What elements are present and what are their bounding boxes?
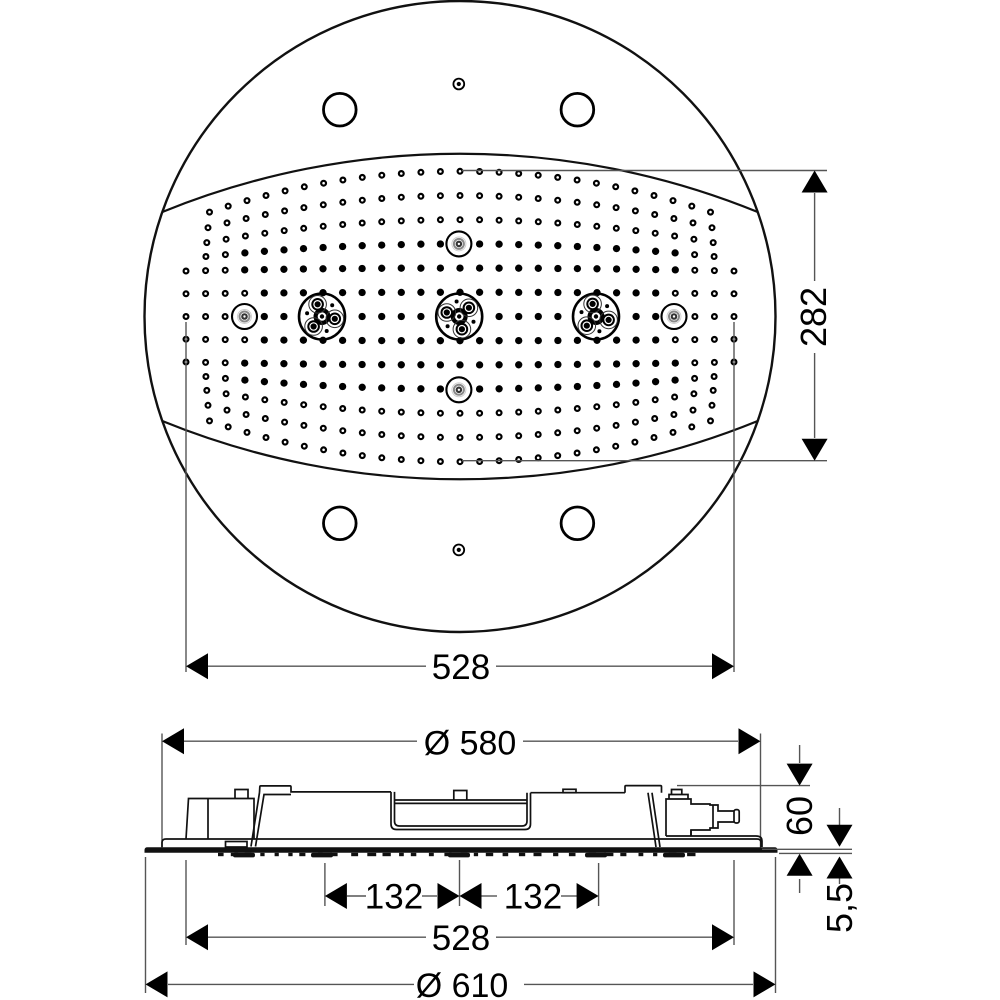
svg-text:60: 60 [779, 796, 820, 836]
svg-text:5,5: 5,5 [819, 883, 860, 933]
svg-text:Ø 580: Ø 580 [424, 725, 517, 763]
svg-text:528: 528 [432, 648, 490, 687]
svg-text:282: 282 [793, 287, 834, 347]
svg-text:132: 132 [504, 878, 562, 917]
svg-text:Ø 610: Ø 610 [416, 967, 509, 1000]
svg-text:132: 132 [365, 878, 423, 917]
svg-text:528: 528 [432, 919, 490, 958]
